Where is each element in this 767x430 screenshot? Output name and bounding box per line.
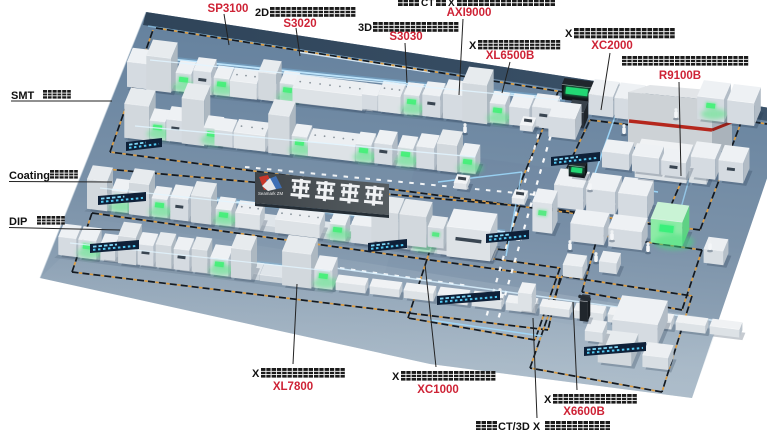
svg-text:CT/3D X: CT/3D X	[498, 421, 541, 430]
svg-text:R9100B: R9100B	[659, 70, 701, 82]
svg-text:XC1000: XC1000	[417, 384, 459, 396]
svg-text:X: X	[392, 371, 400, 383]
svg-text:X6600B: X6600B	[563, 406, 605, 418]
svg-text:X: X	[565, 28, 573, 40]
svg-text:XL6500B: XL6500B	[486, 50, 535, 62]
svg-text:3D: 3D	[358, 22, 372, 34]
svg-text:SP3100: SP3100	[208, 3, 249, 15]
svg-text:CT: CT	[421, 0, 434, 9]
svg-text:Seamark ZM: Seamark ZM	[258, 191, 283, 196]
svg-text:S3030: S3030	[389, 31, 422, 43]
svg-text:X: X	[252, 368, 260, 380]
svg-text:XC2000: XC2000	[591, 40, 633, 52]
svg-text:SMT: SMT	[11, 90, 35, 102]
svg-text:2D: 2D	[255, 7, 269, 19]
svg-text:XL7800: XL7800	[273, 381, 313, 393]
svg-text:AXI9000: AXI9000	[447, 7, 492, 19]
svg-text:DIP: DIP	[9, 216, 27, 228]
svg-text:X: X	[469, 40, 477, 52]
svg-text:X: X	[544, 394, 552, 406]
svg-text:Coating: Coating	[9, 170, 50, 182]
svg-text:S3020: S3020	[283, 18, 316, 30]
